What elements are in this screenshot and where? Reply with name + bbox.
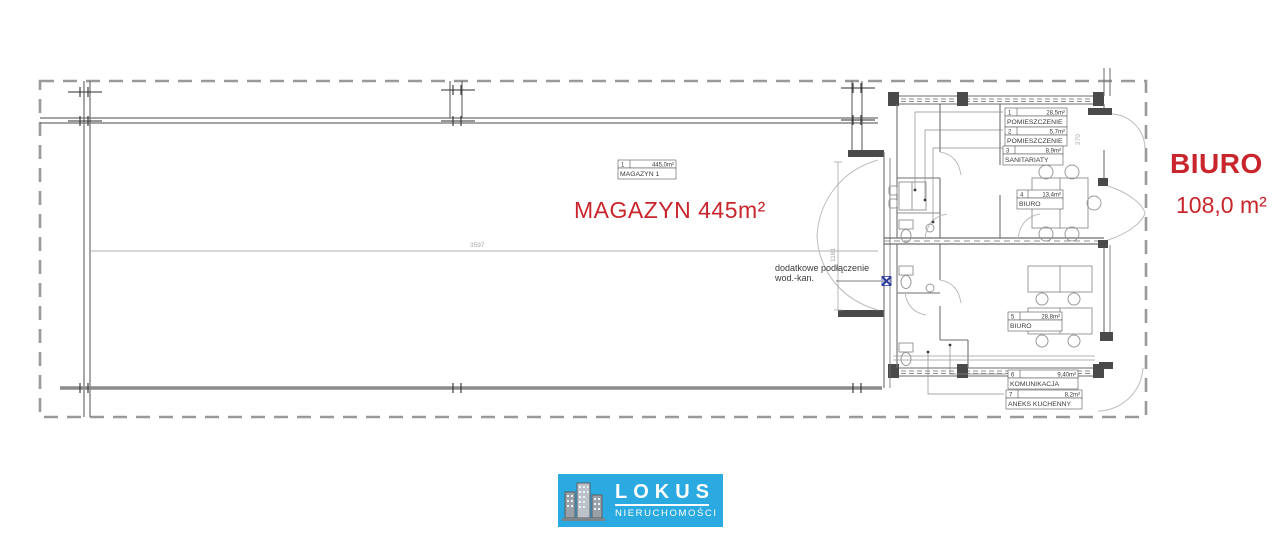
wodkan-annotation-line1: dodatkowe podłączenie — [775, 263, 869, 273]
svg-text:8,2m²: 8,2m² — [1065, 392, 1080, 398]
warehouse-walls — [40, 81, 882, 417]
floorplan-page: 3597 1181 270 1 445,0m² MAGAZYN 1 — [0, 0, 1280, 539]
double-door-arc — [817, 160, 878, 310]
svg-text:ANEKS KUCHENNY: ANEKS KUCHENNY — [1008, 401, 1072, 408]
biuro-side-area: 108,0 m² — [1176, 192, 1267, 219]
svg-text:POMIESZCZENIE: POMIESZCZENIE — [1007, 119, 1063, 126]
logo-divider — [615, 504, 709, 506]
lokus-logo: LOKUS NIERUCHOMOŚCI — [558, 474, 723, 527]
logo-text-block: LOKUS NIERUCHOMOŚCI — [615, 482, 718, 519]
svg-text:270: 270 — [1075, 134, 1082, 145]
svg-text:9,40m²: 9,40m² — [1057, 372, 1076, 378]
office-window-bands — [888, 68, 1110, 378]
logo-subtitle: NIERUCHOMOŚCI — [615, 508, 718, 519]
svg-text:28,5m²: 28,5m² — [1046, 110, 1065, 116]
office-fixtures — [889, 165, 1101, 366]
svg-text:13,4m²: 13,4m² — [1042, 192, 1061, 198]
label-table-room3: 3 8,9m² SANITARIATY — [1003, 146, 1063, 165]
svg-text:8,9m²: 8,9m² — [1046, 148, 1061, 154]
buildings-icon — [558, 478, 608, 524]
svg-text:1181: 1181 — [830, 248, 837, 262]
svg-text:MAGAZYN 1: MAGAZYN 1 — [620, 171, 659, 178]
svg-text:BIURO: BIURO — [1019, 201, 1041, 208]
wodkan-annotation-line2: wod.-kan. — [775, 273, 869, 283]
label-table-room4: 4 13,4m² BIURO — [1017, 190, 1063, 209]
magazyn-area-label: MAGAZYN 445m² — [574, 197, 766, 224]
logo-title: LOKUS — [615, 482, 718, 502]
biuro-side-title: BIURO — [1170, 148, 1263, 180]
label-table-magazyn: 1 445,0m² MAGAZYN 1 — [618, 160, 676, 179]
svg-text:POMIESZCZENIE: POMIESZCZENIE — [1007, 138, 1063, 145]
svg-text:5,7m²: 5,7m² — [1050, 129, 1065, 135]
label-table-room2: 2 5,7m² POMIESZCZENIE — [1005, 127, 1067, 146]
label-table-room6: 6 9,40m² KOMUNIKACJA — [1008, 370, 1078, 389]
svg-text:SANITARIATY: SANITARIATY — [1005, 157, 1049, 164]
svg-text:28,8m²: 28,8m² — [1041, 314, 1060, 320]
office-walls — [884, 104, 1110, 388]
column-markers — [68, 83, 875, 393]
label-table-room5: 5 28,8m² BIURO — [1008, 312, 1062, 331]
svg-text:3597: 3597 — [470, 242, 485, 249]
svg-text:445,0m²: 445,0m² — [652, 162, 674, 168]
dimension-marks: 3597 1181 270 — [470, 134, 1082, 310]
svg-text:BIURO: BIURO — [1010, 323, 1032, 330]
label-table-room1: 1 28,5m² POMIESZCZENIE — [1005, 108, 1067, 127]
svg-text:KOMUNIKACJA: KOMUNIKACJA — [1010, 381, 1060, 388]
wall-stubs — [838, 150, 884, 317]
floorplan-drawing: 3597 1181 270 1 445,0m² MAGAZYN 1 — [0, 0, 1280, 539]
label-table-room7: 7 8,2m² ANEKS KUCHENNY — [1006, 390, 1082, 409]
wodkan-annotation: dodatkowe podłączenie wod.-kan. — [775, 263, 869, 283]
site-boundary-dashed — [40, 81, 1146, 417]
